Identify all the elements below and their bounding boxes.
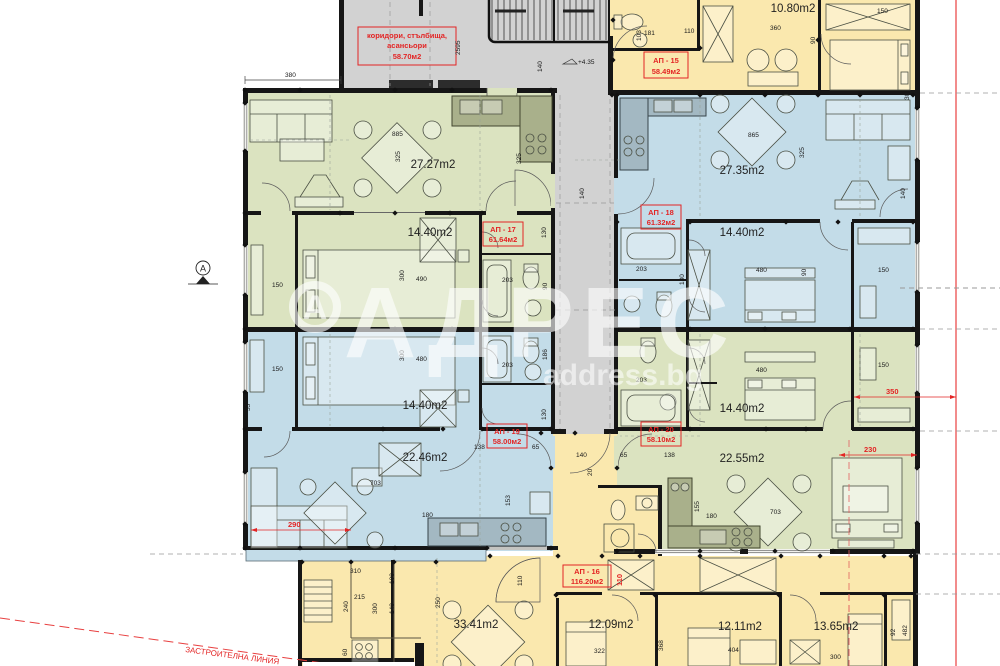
- svg-text:22.55m2: 22.55m2: [720, 453, 765, 465]
- svg-text:153: 153: [505, 495, 512, 506]
- svg-text:A: A: [200, 264, 206, 274]
- svg-text:33.41m2: 33.41m2: [454, 619, 499, 631]
- svg-text:215: 215: [354, 594, 365, 601]
- svg-text:480: 480: [756, 267, 767, 274]
- svg-text:480: 480: [756, 367, 767, 374]
- svg-text:АП - 15: АП - 15: [653, 56, 679, 65]
- svg-text:асансьори: асансьори: [387, 41, 427, 50]
- svg-text:350: 350: [886, 387, 899, 396]
- svg-text:290: 290: [288, 520, 301, 529]
- svg-text:116.20м2: 116.20м2: [571, 577, 603, 586]
- svg-text:180: 180: [422, 512, 433, 519]
- svg-text:250: 250: [435, 597, 442, 608]
- svg-text:138: 138: [664, 452, 675, 459]
- svg-text:100: 100: [389, 573, 396, 584]
- svg-text:92: 92: [890, 628, 897, 636]
- svg-text:130: 130: [541, 227, 548, 238]
- svg-text:33: 33: [245, 403, 252, 411]
- svg-text:АП - 19: АП - 19: [494, 427, 520, 436]
- svg-text:140: 140: [576, 452, 587, 459]
- svg-text:150: 150: [878, 267, 889, 274]
- svg-text:58.10м2: 58.10м2: [647, 435, 676, 444]
- svg-text:14.40m2: 14.40m2: [720, 403, 765, 415]
- svg-text:404: 404: [728, 647, 739, 654]
- svg-text:27.27m2: 27.27m2: [411, 159, 456, 171]
- svg-text:325: 325: [516, 153, 523, 164]
- svg-text:20: 20: [587, 468, 594, 476]
- svg-text:180: 180: [706, 513, 717, 520]
- svg-text:А: А: [303, 289, 328, 327]
- svg-text:140: 140: [579, 188, 586, 199]
- svg-text:240: 240: [343, 601, 350, 612]
- svg-text:13.65m2: 13.65m2: [814, 621, 859, 633]
- svg-text:14.40m2: 14.40m2: [408, 227, 453, 239]
- svg-text:181: 181: [644, 30, 655, 37]
- svg-text:61.64м2: 61.64м2: [489, 235, 518, 244]
- svg-text:12.11m2: 12.11m2: [718, 621, 762, 633]
- svg-text:150: 150: [877, 8, 888, 15]
- svg-text:138: 138: [474, 444, 485, 451]
- svg-text:325: 325: [799, 147, 806, 158]
- svg-text:10.80m2: 10.80m2: [771, 3, 816, 15]
- svg-text:103: 103: [636, 30, 643, 41]
- svg-text:703: 703: [370, 480, 381, 487]
- svg-text:150: 150: [878, 362, 889, 369]
- svg-text:310: 310: [350, 568, 361, 575]
- svg-text:703: 703: [770, 509, 781, 516]
- svg-text:2595: 2595: [455, 40, 462, 55]
- svg-text:150: 150: [272, 366, 283, 373]
- svg-text:230: 230: [864, 445, 877, 454]
- svg-text:140: 140: [537, 61, 544, 72]
- svg-text:14.40m2: 14.40m2: [403, 400, 448, 412]
- svg-text:АП - 20: АП - 20: [648, 425, 674, 434]
- svg-text:60: 60: [342, 648, 349, 656]
- svg-text:АП - 17: АП - 17: [490, 225, 516, 234]
- svg-text:+4.35: +4.35: [578, 59, 595, 66]
- svg-text:90: 90: [801, 268, 808, 276]
- svg-text:140: 140: [389, 603, 396, 614]
- svg-text:58.00м2: 58.00м2: [493, 437, 522, 446]
- svg-text:АП - 16: АП - 16: [574, 567, 600, 576]
- svg-text:140: 140: [900, 188, 907, 199]
- svg-text:коридори, стълбища,: коридори, стълбища,: [367, 31, 447, 40]
- svg-text:482: 482: [902, 625, 909, 636]
- svg-text:885: 885: [392, 131, 403, 138]
- svg-text:22.46m2: 22.46m2: [403, 452, 448, 464]
- svg-text:27.35m2: 27.35m2: [720, 165, 765, 177]
- svg-text:14.40m2: 14.40m2: [720, 227, 765, 239]
- svg-text:155: 155: [694, 501, 701, 512]
- svg-text:58.49м2: 58.49м2: [652, 67, 681, 76]
- svg-text:110: 110: [517, 575, 524, 586]
- svg-text:65: 65: [532, 444, 540, 451]
- svg-text:90: 90: [810, 36, 817, 44]
- svg-text:58.70м2: 58.70м2: [393, 52, 422, 61]
- svg-text:address.bg: address.bg: [543, 359, 703, 392]
- svg-text:368: 368: [658, 640, 665, 651]
- svg-text:61.32м2: 61.32м2: [647, 218, 676, 227]
- svg-text:865: 865: [748, 132, 759, 139]
- svg-text:130: 130: [541, 409, 548, 420]
- svg-text:322: 322: [594, 648, 605, 655]
- svg-text:150: 150: [272, 282, 283, 289]
- svg-text:380: 380: [285, 72, 296, 79]
- svg-text:12.09m2: 12.09m2: [589, 619, 634, 631]
- svg-text:АП - 18: АП - 18: [648, 208, 674, 217]
- svg-text:300: 300: [830, 654, 841, 661]
- svg-text:300: 300: [372, 603, 379, 614]
- svg-text:110: 110: [684, 28, 695, 35]
- svg-text:65: 65: [620, 452, 628, 459]
- svg-text:30: 30: [904, 92, 911, 100]
- svg-text:325: 325: [395, 151, 402, 162]
- svg-text:360: 360: [770, 25, 781, 32]
- svg-text:110: 110: [615, 574, 624, 586]
